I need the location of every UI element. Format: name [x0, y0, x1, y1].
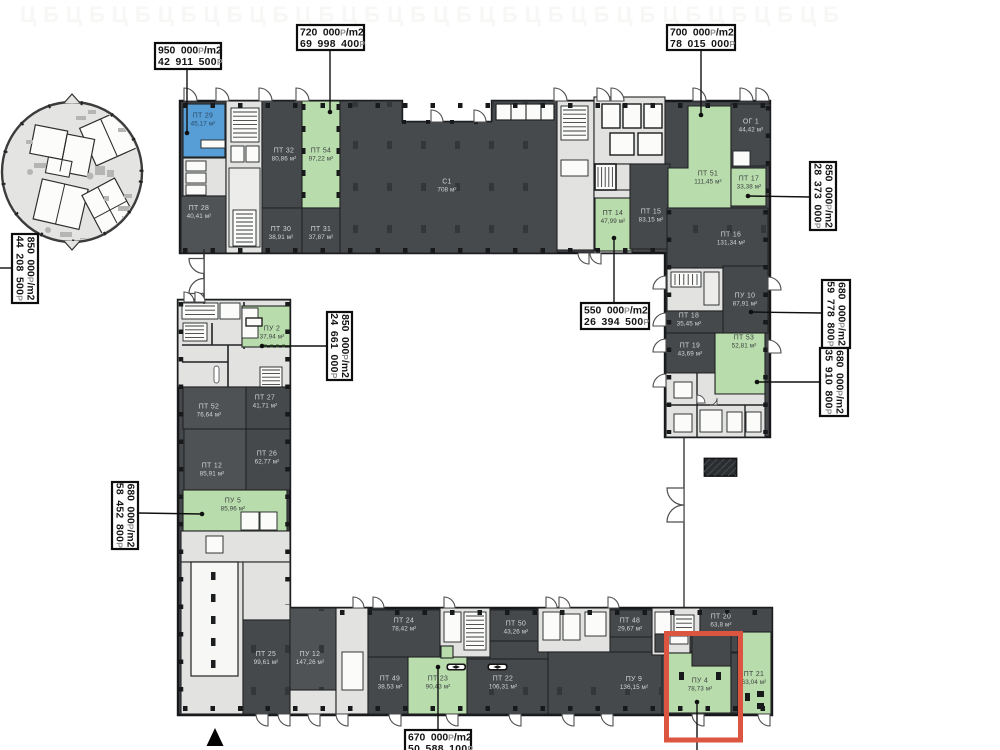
svg-text:ПУ 9: ПУ 9 — [626, 676, 642, 683]
svg-text:111,45 м²: 111,45 м² — [694, 179, 721, 186]
svg-text:700 000Р/m2: 700 000Р/m2 — [670, 28, 734, 39]
svg-text:ПТ 12: ПТ 12 — [202, 463, 223, 470]
svg-text:78,73 м²: 78,73 м² — [688, 686, 713, 693]
svg-text:ПТ 50: ПТ 50 — [506, 621, 527, 628]
svg-text:ПУ 2: ПУ 2 — [264, 326, 280, 333]
svg-text:ПТ 21: ПТ 21 — [744, 671, 765, 678]
svg-text:147,26 м²: 147,26 м² — [296, 659, 324, 666]
svg-text:680 000Р/m2: 680 000Р/m2 — [836, 282, 847, 346]
svg-text:ПТ 19: ПТ 19 — [680, 343, 701, 350]
svg-text:52,81 м²: 52,81 м² — [732, 343, 757, 350]
svg-text:ПТ 27: ПТ 27 — [255, 395, 276, 402]
svg-text:85,96 м²: 85,96 м² — [221, 506, 246, 513]
svg-text:ПТ 16: ПТ 16 — [721, 232, 742, 239]
svg-text:26 394 500Р: 26 394 500Р — [584, 317, 649, 328]
svg-text:850 000Р/m2: 850 000Р/m2 — [339, 314, 350, 378]
svg-text:43,26 м²: 43,26 м² — [504, 629, 529, 636]
svg-text:62,77 м²: 62,77 м² — [255, 459, 280, 466]
svg-text:38,91 м²: 38,91 м² — [269, 234, 294, 241]
svg-text:69 998 400Р: 69 998 400Р — [300, 39, 365, 50]
svg-text:680 000Р/m2: 680 000Р/m2 — [125, 484, 136, 548]
svg-text:ПТ 48: ПТ 48 — [620, 618, 641, 625]
svg-text:720 000Р/m2: 720 000Р/m2 — [300, 28, 364, 39]
svg-text:ПТ 18: ПТ 18 — [679, 313, 700, 320]
svg-text:ПТ 22: ПТ 22 — [493, 676, 514, 683]
svg-text:850 000Р/m2: 850 000Р/m2 — [823, 164, 834, 228]
svg-text:63,8 м²: 63,8 м² — [710, 622, 731, 629]
svg-text:28 373 000Р: 28 373 000Р — [811, 163, 822, 228]
svg-text:136,15 м²: 136,15 м² — [620, 684, 648, 691]
svg-text:ПТ 14: ПТ 14 — [603, 210, 624, 217]
svg-text:ПТ 31: ПТ 31 — [311, 226, 332, 233]
svg-text:106,31 м²: 106,31 м² — [489, 684, 517, 691]
svg-text:ПТ 30: ПТ 30 — [271, 226, 292, 233]
svg-text:78 015 000Р: 78 015 000Р — [670, 39, 735, 50]
svg-text:87,91 м²: 87,91 м² — [733, 301, 758, 308]
svg-text:35,45 м²: 35,45 м² — [677, 321, 702, 328]
svg-text:ПТ 26: ПТ 26 — [257, 451, 278, 458]
svg-text:83,15 м²: 83,15 м² — [639, 217, 664, 224]
svg-text:ПТ 28: ПТ 28 — [189, 205, 210, 212]
svg-text:29,67 м²: 29,67 м² — [618, 626, 643, 633]
svg-text:59 778 800Р: 59 778 800Р — [824, 281, 835, 346]
svg-text:97,22 м²: 97,22 м² — [309, 156, 334, 163]
svg-text:ПТ 53: ПТ 53 — [734, 335, 755, 342]
svg-text:ПТ 20: ПТ 20 — [711, 614, 732, 621]
svg-text:85,91 м²: 85,91 м² — [200, 471, 225, 478]
svg-text:ПТ 51: ПТ 51 — [698, 171, 719, 178]
svg-text:ПТ 17: ПТ 17 — [739, 176, 760, 183]
svg-text:40,41 м²: 40,41 м² — [187, 213, 212, 220]
svg-text:78,42 м²: 78,42 м² — [392, 626, 417, 633]
svg-text:708 м²: 708 м² — [437, 187, 456, 194]
svg-text:ПТ 25: ПТ 25 — [256, 651, 277, 658]
svg-text:35 910 800Р: 35 910 800Р — [822, 349, 833, 414]
svg-text:ПТ 54: ПТ 54 — [311, 148, 332, 155]
svg-text:63,04 м²: 63,04 м² — [742, 679, 767, 686]
svg-text:670 000Р/m2: 670 000Р/m2 — [408, 733, 472, 744]
svg-text:33,38 м²: 33,38 м² — [737, 184, 762, 191]
svg-text:76,64 м²: 76,64 м² — [197, 412, 222, 419]
svg-text:ПУ 10: ПУ 10 — [735, 293, 756, 300]
svg-text:ПТ 49: ПТ 49 — [380, 676, 401, 683]
svg-text:24 661 000Р: 24 661 000Р — [328, 313, 339, 378]
svg-text:ПТ 32: ПТ 32 — [274, 148, 295, 155]
svg-text:ОГ 1: ОГ 1 — [743, 119, 759, 126]
svg-text:43,69 м²: 43,69 м² — [678, 351, 703, 358]
svg-text:44 208 500Р: 44 208 500Р — [13, 236, 24, 301]
svg-text:ПУ 4: ПУ 4 — [692, 678, 708, 685]
svg-text:50 588 100Р: 50 588 100Р — [408, 744, 473, 750]
svg-text:950 000Р/m2: 950 000Р/m2 — [158, 46, 222, 57]
svg-text:С1: С1 — [442, 179, 452, 186]
svg-text:ПТ 24: ПТ 24 — [394, 618, 415, 625]
svg-text:45,17 м²: 45,17 м² — [191, 121, 216, 128]
svg-text:131,34 м²: 131,34 м² — [717, 240, 745, 247]
svg-text:ПТ 29: ПТ 29 — [193, 113, 214, 120]
svg-text:80,86 м²: 80,86 м² — [272, 156, 297, 163]
svg-text:47,99 м²: 47,99 м² — [601, 218, 626, 225]
svg-text:37,94 м²: 37,94 м² — [260, 334, 285, 341]
svg-text:41,71 м²: 41,71 м² — [253, 403, 278, 410]
svg-text:850 000Р/m2: 850 000Р/m2 — [25, 237, 36, 301]
svg-text:44,42 м²: 44,42 м² — [739, 127, 764, 134]
svg-text:99,61 м²: 99,61 м² — [254, 659, 279, 666]
svg-text:42 911 500Р: 42 911 500Р — [158, 57, 223, 68]
svg-text:ПУ 12: ПУ 12 — [300, 651, 321, 658]
svg-text:58 452 800Р: 58 452 800Р — [113, 483, 124, 548]
svg-text:680 000Р/m2: 680 000Р/m2 — [834, 350, 845, 414]
svg-text:ПУ 5: ПУ 5 — [225, 498, 241, 505]
svg-text:ПТ 52: ПТ 52 — [199, 404, 220, 411]
svg-text:ПТ 15: ПТ 15 — [641, 209, 662, 216]
svg-text:37,87 м²: 37,87 м² — [309, 234, 334, 241]
svg-text:38,53 м²: 38,53 м² — [378, 684, 403, 691]
svg-text:ЦБЦБЦБЦБЦБЦБЦБЦБЦБЦБЦБЦБЦБЦБЦБ: ЦБЦБЦБЦБЦБЦБЦБЦБЦБЦБЦБЦБЦБЦБЦБЦБЦБЦБ — [20, 2, 846, 27]
svg-text:550 000Р/m2: 550 000Р/m2 — [584, 306, 648, 317]
